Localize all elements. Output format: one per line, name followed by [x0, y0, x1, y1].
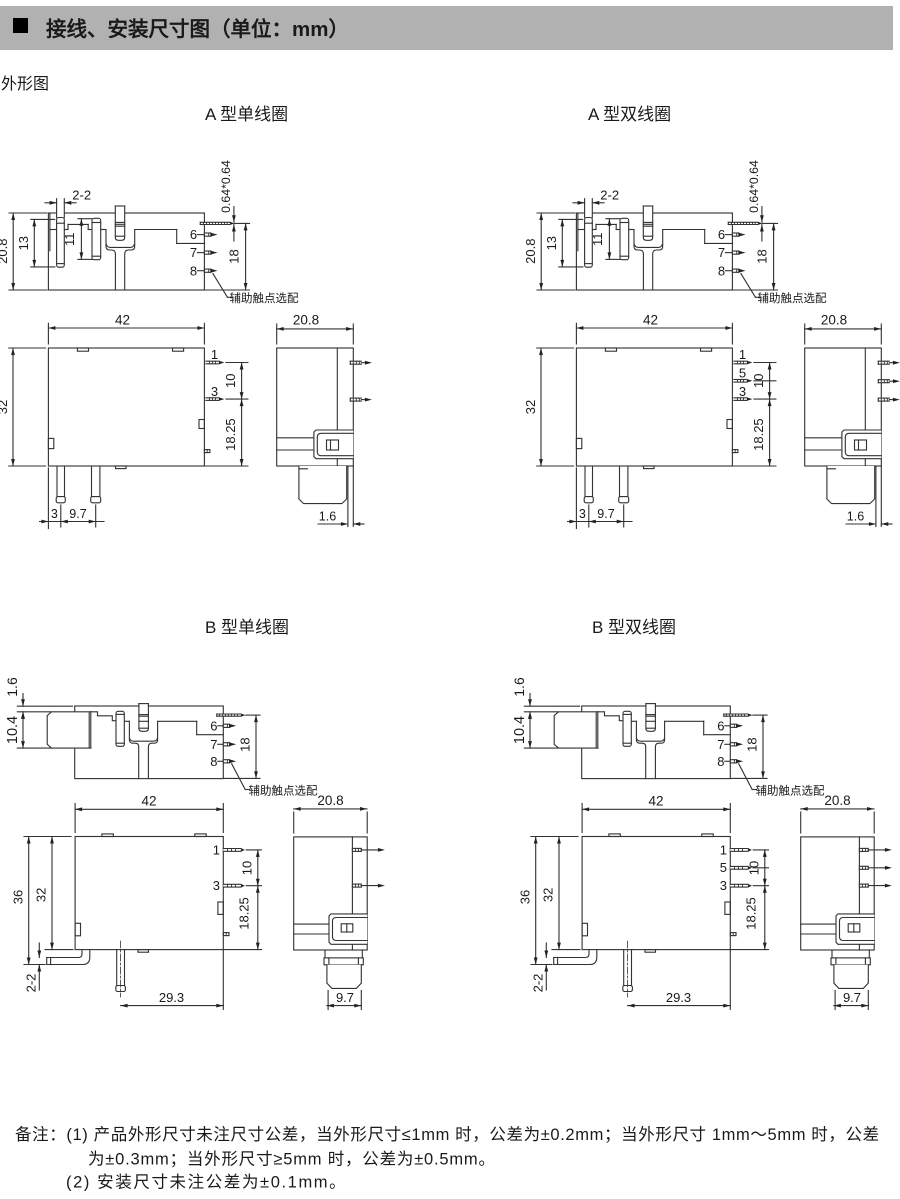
svg-text:6: 6 [717, 718, 724, 733]
svg-text:10.4: 10.4 [5, 716, 21, 744]
svg-text:18: 18 [755, 249, 770, 263]
svg-text:(2) 安装尺寸未注公差为±0.1mm。: (2) 安装尺寸未注公差为±0.1mm。 [66, 1173, 347, 1192]
svg-text:9.7: 9.7 [69, 507, 86, 521]
svg-text:辅助触点选配: 辅助触点选配 [230, 291, 299, 305]
svg-text:8: 8 [718, 263, 725, 278]
svg-text:29.3: 29.3 [666, 990, 691, 1005]
svg-text:8: 8 [190, 263, 197, 278]
svg-text:20.8: 20.8 [293, 312, 319, 327]
svg-text:5: 5 [739, 366, 746, 381]
svg-text:B 型双线圈: B 型双线圈 [592, 618, 676, 637]
svg-text:A 型双线圈: A 型双线圈 [588, 105, 671, 124]
svg-text:7: 7 [717, 737, 724, 752]
svg-text:2-2: 2-2 [531, 974, 546, 993]
svg-text:7: 7 [210, 737, 217, 752]
svg-text:3: 3 [213, 878, 220, 893]
svg-text:42: 42 [648, 794, 663, 809]
svg-text:8: 8 [717, 754, 724, 769]
svg-text:10.4: 10.4 [512, 716, 528, 744]
svg-text:1.6: 1.6 [847, 510, 864, 524]
svg-text:20.8: 20.8 [523, 239, 538, 264]
svg-text:9.7: 9.7 [597, 507, 614, 521]
svg-text:7: 7 [190, 245, 197, 260]
svg-text:42: 42 [141, 794, 156, 809]
svg-text:备注：(1) 产品外形尺寸未注尺寸公差，当外形尺寸≤1mm: 备注：(1) 产品外形尺寸未注尺寸公差，当外形尺寸≤1mm 时，公差为±0.2m… [15, 1125, 880, 1144]
svg-text:36: 36 [10, 890, 25, 904]
svg-text:1: 1 [720, 842, 727, 857]
svg-text:18.25: 18.25 [751, 418, 766, 451]
svg-text:18: 18 [744, 737, 759, 751]
svg-text:7: 7 [718, 245, 725, 260]
svg-text:11: 11 [62, 233, 77, 247]
svg-text:20.8: 20.8 [824, 793, 850, 808]
svg-text:11: 11 [590, 233, 605, 247]
svg-text:10: 10 [223, 374, 238, 388]
svg-text:1: 1 [213, 842, 220, 857]
svg-text:20.8: 20.8 [317, 793, 343, 808]
svg-text:接线、安装尺寸图（单位：mm）: 接线、安装尺寸图（单位：mm） [46, 17, 349, 41]
svg-text:2-2: 2-2 [600, 188, 619, 203]
svg-text:0.64*0.64: 0.64*0.64 [747, 160, 761, 213]
svg-text:0.64*0.64: 0.64*0.64 [219, 160, 233, 213]
svg-text:3: 3 [739, 384, 746, 399]
svg-text:5: 5 [720, 860, 727, 875]
svg-text:42: 42 [643, 312, 658, 327]
svg-text:辅助触点选配: 辅助触点选配 [758, 291, 827, 305]
svg-text:外形图: 外形图 [1, 75, 49, 93]
svg-text:9.7: 9.7 [843, 990, 861, 1005]
svg-text:8: 8 [210, 754, 217, 769]
svg-text:3: 3 [579, 507, 586, 521]
svg-text:13: 13 [16, 236, 31, 250]
svg-text:2-2: 2-2 [72, 188, 91, 203]
svg-text:9.7: 9.7 [336, 990, 354, 1005]
svg-text:A 型单线圈: A 型单线圈 [205, 105, 288, 124]
svg-text:32: 32 [34, 888, 49, 902]
svg-text:29.3: 29.3 [159, 990, 184, 1005]
svg-text:为±0.3mm；当外形尺寸≥5mm 时，公差为±0.5mm。: 为±0.3mm；当外形尺寸≥5mm 时，公差为±0.5mm。 [88, 1150, 496, 1169]
svg-text:6: 6 [718, 227, 725, 242]
svg-text:32: 32 [0, 400, 10, 414]
svg-text:36: 36 [517, 890, 532, 904]
svg-text:10: 10 [239, 861, 254, 875]
svg-text:10: 10 [746, 861, 761, 875]
svg-text:2-2: 2-2 [24, 974, 39, 993]
svg-text:B 型单线圈: B 型单线圈 [205, 618, 289, 637]
svg-text:18.25: 18.25 [223, 418, 238, 451]
svg-text:1.6: 1.6 [511, 677, 527, 697]
svg-text:18.25: 18.25 [744, 897, 759, 930]
svg-text:32: 32 [523, 400, 538, 414]
svg-text:6: 6 [210, 718, 217, 733]
svg-text:3: 3 [211, 384, 218, 399]
svg-text:32: 32 [541, 888, 556, 902]
svg-text:3: 3 [51, 507, 58, 521]
svg-text:辅助触点选配: 辅助触点选配 [249, 784, 318, 798]
svg-text:1: 1 [739, 347, 746, 362]
svg-text:1.6: 1.6 [319, 510, 336, 524]
svg-text:42: 42 [115, 312, 130, 327]
svg-text:18: 18 [237, 737, 252, 751]
svg-text:6: 6 [190, 227, 197, 242]
svg-text:13: 13 [544, 236, 559, 250]
svg-text:10: 10 [751, 374, 766, 388]
svg-text:18: 18 [227, 249, 242, 263]
svg-text:3: 3 [720, 878, 727, 893]
svg-text:20.8: 20.8 [0, 239, 10, 264]
svg-text:1.6: 1.6 [4, 677, 20, 697]
svg-text:18.25: 18.25 [237, 897, 252, 930]
svg-text:1: 1 [211, 347, 218, 362]
svg-text:辅助触点选配: 辅助触点选配 [756, 784, 825, 798]
svg-text:20.8: 20.8 [821, 312, 847, 327]
